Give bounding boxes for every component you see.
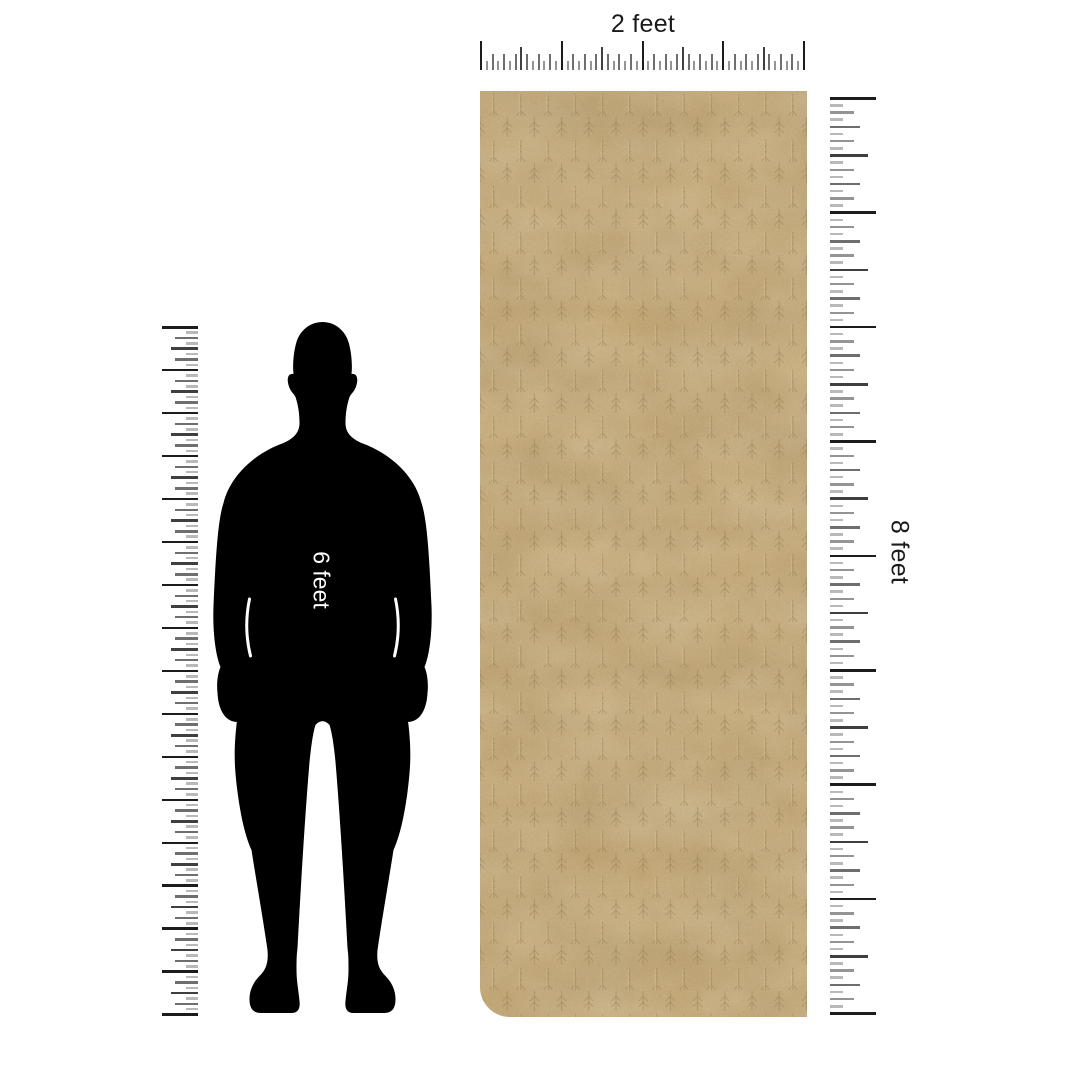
ruler-tick [653,54,655,70]
ruler-tick [774,61,776,70]
ruler-tick [186,546,198,549]
ruler-tick [830,934,843,937]
ruler-tick [171,519,198,522]
ruler-tick [538,54,540,70]
ruler-tick [618,54,620,70]
ruler-tick [186,611,198,614]
ruler-tick [830,783,876,786]
ruler-tick [162,842,198,845]
ruler-tick [171,820,198,823]
ruler-tick [830,176,843,179]
ruler-tick [830,819,843,822]
ruler-tick [186,568,198,571]
ruler-tick [186,965,198,968]
ruler-tick [786,61,788,70]
ruler-tick [830,133,843,136]
ruler-tick [830,869,860,872]
ruler-tick [830,383,868,386]
ruler-tick [830,347,843,350]
ruler-tick [175,444,198,447]
ruler-tick [171,992,198,995]
ruler-tick [186,922,198,925]
ruler-tick [734,54,736,70]
ruler-tick [162,498,198,501]
ruler-tick [830,655,854,658]
ruler-tick [830,340,854,343]
ruler-tick [830,984,860,987]
ruler-tick [186,686,198,689]
ruler-tick [716,61,718,70]
ruler-tick [186,342,198,345]
ruler-tick [830,390,843,393]
ruler-tick [830,526,860,529]
ruler-tick [728,61,730,70]
ruler-tick [830,841,868,844]
ruler-tick [830,140,854,143]
ruler-tick [171,347,198,350]
ruler-tick [647,61,649,70]
ruler-tick [162,799,198,802]
ruler-tick [162,412,198,415]
ruler-tick [830,118,843,121]
ruler-tick [830,690,843,693]
ruler-tick [186,858,198,861]
product-height-ruler [830,97,878,1015]
ruler-tick [830,605,843,608]
ruler-tick [830,462,843,465]
ruler-tick [830,111,854,114]
ruler-tick [175,788,198,791]
ruler-tick [763,47,765,70]
ruler-tick [590,61,592,70]
ruler-tick [830,490,843,493]
ruler-tick [175,1003,198,1006]
ruler-tick [830,247,843,250]
ruler-tick [830,540,854,543]
ruler-tick [175,423,198,426]
ruler-tick [830,261,843,264]
ruler-tick [186,997,198,1000]
ruler-tick [830,240,860,243]
ruler-tick [830,226,854,229]
ruler-tick [175,831,198,834]
ruler-tick [830,776,843,779]
ruler-tick [830,426,854,429]
ruler-tick [797,61,799,70]
ruler-tick [830,269,868,272]
ruler-tick [830,533,843,536]
ruler-tick [543,61,545,70]
ruler-tick [175,573,198,576]
ruler-tick [572,54,574,70]
ruler-tick [175,530,198,533]
ruler-tick [830,876,843,879]
ruler-tick [186,664,198,667]
ruler-tick [171,949,198,952]
ruler-tick [175,917,198,920]
ruler-tick [830,455,854,458]
ruler-tick [175,766,198,769]
ruler-tick [830,233,843,236]
ruler-tick [830,469,860,472]
ruler-tick [186,933,198,936]
ruler-tick [830,154,868,157]
ruler-tick [830,555,876,558]
ruler-tick [186,815,198,818]
ruler-tick [693,61,695,70]
ruler-tick [509,61,511,70]
ruler-tick [830,898,876,901]
ruler-tick [186,643,198,646]
ruler-tick [830,219,843,222]
ruler-tick [830,833,843,836]
ruler-tick [830,369,854,372]
ruler-tick [745,54,747,70]
ruler-tick [830,1005,843,1008]
ruler-tick [830,683,854,686]
ruler-tick [676,54,678,70]
ruler-tick [830,948,843,951]
ruler-tick [171,648,198,651]
ruler-tick [186,535,198,538]
ruler-tick [171,390,198,393]
ruler-tick [830,612,868,615]
ruler-tick [830,440,876,443]
ruler-tick [830,397,854,400]
ruler-tick [830,583,860,586]
ruler-tick [830,104,843,107]
ruler-tick [830,304,843,307]
ruler-tick [186,954,198,957]
ruler-tick [830,376,843,379]
ruler-tick [830,741,854,744]
ruler-tick [830,791,843,794]
ruler-tick [830,755,860,758]
ruler-tick [601,47,603,70]
ruler-tick [186,578,198,581]
ruler-tick [830,562,843,565]
ruler-tick [186,374,198,377]
ruler-tick [175,659,198,662]
ruler-tick [175,616,198,619]
ruler-tick [830,447,843,450]
ruler-tick [830,276,843,279]
ruler-tick [830,862,843,865]
ruler-tick [830,576,843,579]
ruler-tick [175,874,198,877]
ruler-tick [186,987,198,990]
ruler-tick [175,466,198,469]
ruler-tick [722,41,724,70]
ruler-tick [624,61,626,70]
ruler-tick [830,726,868,729]
ruler-tick [175,337,198,340]
ruler-tick [830,204,843,207]
ruler-tick [830,326,876,329]
ruler-tick [175,680,198,683]
ruler-tick [830,698,860,701]
ruler-tick [175,487,198,490]
ruler-tick [175,895,198,898]
ruler-tick [549,54,551,70]
ruler-tick [791,54,793,70]
ruler-tick [630,54,632,70]
ruler-tick [492,54,494,70]
ruler-tick [171,863,198,866]
ruler-tick [830,312,854,315]
ruler-tick [830,254,854,257]
ruler-tick [171,734,198,737]
ruler-tick [186,772,198,775]
ruler-tick [186,825,198,828]
ruler-tick [830,169,854,172]
ruler-tick [480,41,482,70]
ruler-tick [830,126,860,129]
ruler-tick [751,61,753,70]
ruler-tick [830,97,876,100]
ruler-tick [830,633,843,636]
ruler-tick [186,1008,198,1011]
ruler-tick [830,676,843,679]
ruler-tick [830,161,843,164]
ruler-tick [830,333,843,336]
ruler-tick [830,590,843,593]
ruler-tick [175,960,198,963]
ruler-tick [642,41,644,70]
ruler-tick [162,927,198,930]
ruler-tick [595,54,597,70]
ruler-tick [830,362,843,365]
ruler-tick [830,147,843,150]
ruler-tick [830,748,843,751]
ruler-tick [830,319,843,322]
ruler-tick [186,976,198,979]
ruler-tick [803,41,805,70]
ruler-tick [186,482,198,485]
ruler-tick [830,648,843,651]
ruler-tick [162,584,198,587]
ruler-tick [186,707,198,710]
ruler-tick [636,61,638,70]
ruler-tick [171,691,198,694]
ruler-tick [830,719,843,722]
ruler-tick [830,640,860,643]
ruler-tick [175,852,198,855]
product-panel [480,91,807,1017]
ruler-tick [830,483,854,486]
ruler-tick [830,805,843,808]
ruler-tick [584,54,586,70]
ruler-tick [780,54,782,70]
ruler-tick [186,364,198,367]
ruler-tick [186,697,198,700]
ruler-tick [175,702,198,705]
ruler-tick [830,769,854,772]
ruler-tick [186,675,198,678]
ruler-tick [830,283,854,286]
ruler-tick [486,61,488,70]
ruler-tick [830,991,843,994]
ruler-tick [830,669,876,672]
ruler-tick [162,970,198,973]
ruler-tick [186,525,198,528]
ruler-tick [830,891,843,894]
ruler-tick [186,557,198,560]
ruler-tick [830,497,868,500]
ruler-tick [186,471,198,474]
ruler-tick [186,407,198,410]
ruler-tick [578,61,580,70]
ruler-tick [186,632,198,635]
ruler-tick [520,47,522,70]
ruler-tick [162,369,198,372]
ruler-tick [186,428,198,431]
ruler-tick [175,358,198,361]
ruler-tick [830,190,843,193]
rug-texture [480,91,807,1017]
ruler-tick [186,890,198,893]
ruler-tick [830,905,843,908]
ruler-tick [830,297,860,300]
ruler-tick [665,54,667,70]
ruler-tick [175,401,198,404]
ruler-tick [830,705,843,708]
ruler-tick [186,385,198,388]
ruler-tick [830,519,843,522]
ruler-tick [186,396,198,399]
ruler-tick [162,326,198,329]
ruler-tick [705,61,707,70]
ruler-tick [830,733,843,736]
ruler-tick [830,712,854,715]
ruler-tick [830,919,843,922]
ruler-tick [830,941,854,944]
ruler-tick [186,331,198,334]
ruler-tick [186,492,198,495]
ruler-tick [186,879,198,882]
ruler-tick [503,54,505,70]
ruler-tick [830,826,854,829]
ruler-tick [830,976,843,979]
person-height-ruler [162,326,198,1016]
ruler-tick [830,969,854,972]
ruler-tick [688,54,690,70]
ruler-tick [830,354,860,357]
ruler-tick [740,61,742,70]
ruler-tick [830,798,854,801]
ruler-tick [670,61,672,70]
ruler-tick [186,589,198,592]
ruler-tick [830,197,854,200]
person-silhouette [212,322,433,1015]
ruler-tick [768,54,770,70]
ruler-tick [830,505,843,508]
ruler-tick [186,353,198,356]
ruler-tick [830,926,860,929]
ruler-tick [175,509,198,512]
ruler-tick [186,503,198,506]
ruler-tick [830,1012,876,1015]
ruler-tick [171,777,198,780]
ruler-tick [497,61,499,70]
ruler-tick [561,41,563,70]
ruler-tick [162,670,198,673]
ruler-tick [175,637,198,640]
ruler-tick [830,476,843,479]
horizontal-width-ruler [480,40,806,70]
ruler-tick [186,654,198,657]
ruler-tick [171,476,198,479]
ruler-tick [830,848,843,851]
ruler-tick [186,761,198,764]
ruler-tick [175,809,198,812]
ruler-tick [175,595,198,598]
ruler-tick [186,439,198,442]
person-height-label: 6 feet [308,551,335,609]
ruler-tick [186,514,198,517]
ruler-tick [830,404,843,407]
ruler-tick [175,981,198,984]
ruler-tick [682,47,684,70]
ruler-tick [186,621,198,624]
ruler-tick [830,855,854,858]
ruler-tick [711,54,713,70]
ruler-tick [515,54,517,70]
ruler-tick [186,901,198,904]
ruler-tick [607,54,609,70]
ruler-tick [830,412,860,415]
ruler-tick [830,884,854,887]
ruler-tick [830,812,860,815]
ruler-tick [171,605,198,608]
ruler-tick [171,433,198,436]
ruler-tick [186,793,198,796]
ruler-tick [186,450,198,453]
ruler-tick [175,380,198,383]
ruler-tick [567,61,569,70]
ruler-tick [830,569,854,572]
ruler-tick [830,955,868,958]
ruler-tick [186,804,198,807]
ruler-tick [186,460,198,463]
ruler-tick [830,998,854,1001]
ruler-tick [613,61,615,70]
ruler-tick [162,884,198,887]
ruler-tick [186,739,198,742]
ruler-tick [830,962,843,965]
ruler-tick [186,600,198,603]
ruler-tick [186,750,198,753]
ruler-tick [186,782,198,785]
ruler-tick [186,417,198,420]
size-comparison-canvas: 2 feet 8 feet [0,0,1080,1080]
ruler-tick [186,836,198,839]
ruler-tick [162,627,198,630]
ruler-tick [830,662,843,665]
ruler-tick [830,211,876,214]
ruler-tick [830,547,843,550]
ruler-tick [186,729,198,732]
ruler-tick [171,562,198,565]
ruler-tick [162,455,198,458]
ruler-tick [830,619,843,622]
ruler-tick [175,938,198,941]
ruler-tick [830,762,843,765]
ruler-tick [659,61,661,70]
product-width-label: 2 feet [480,10,806,39]
ruler-tick [175,745,198,748]
ruler-tick [526,54,528,70]
